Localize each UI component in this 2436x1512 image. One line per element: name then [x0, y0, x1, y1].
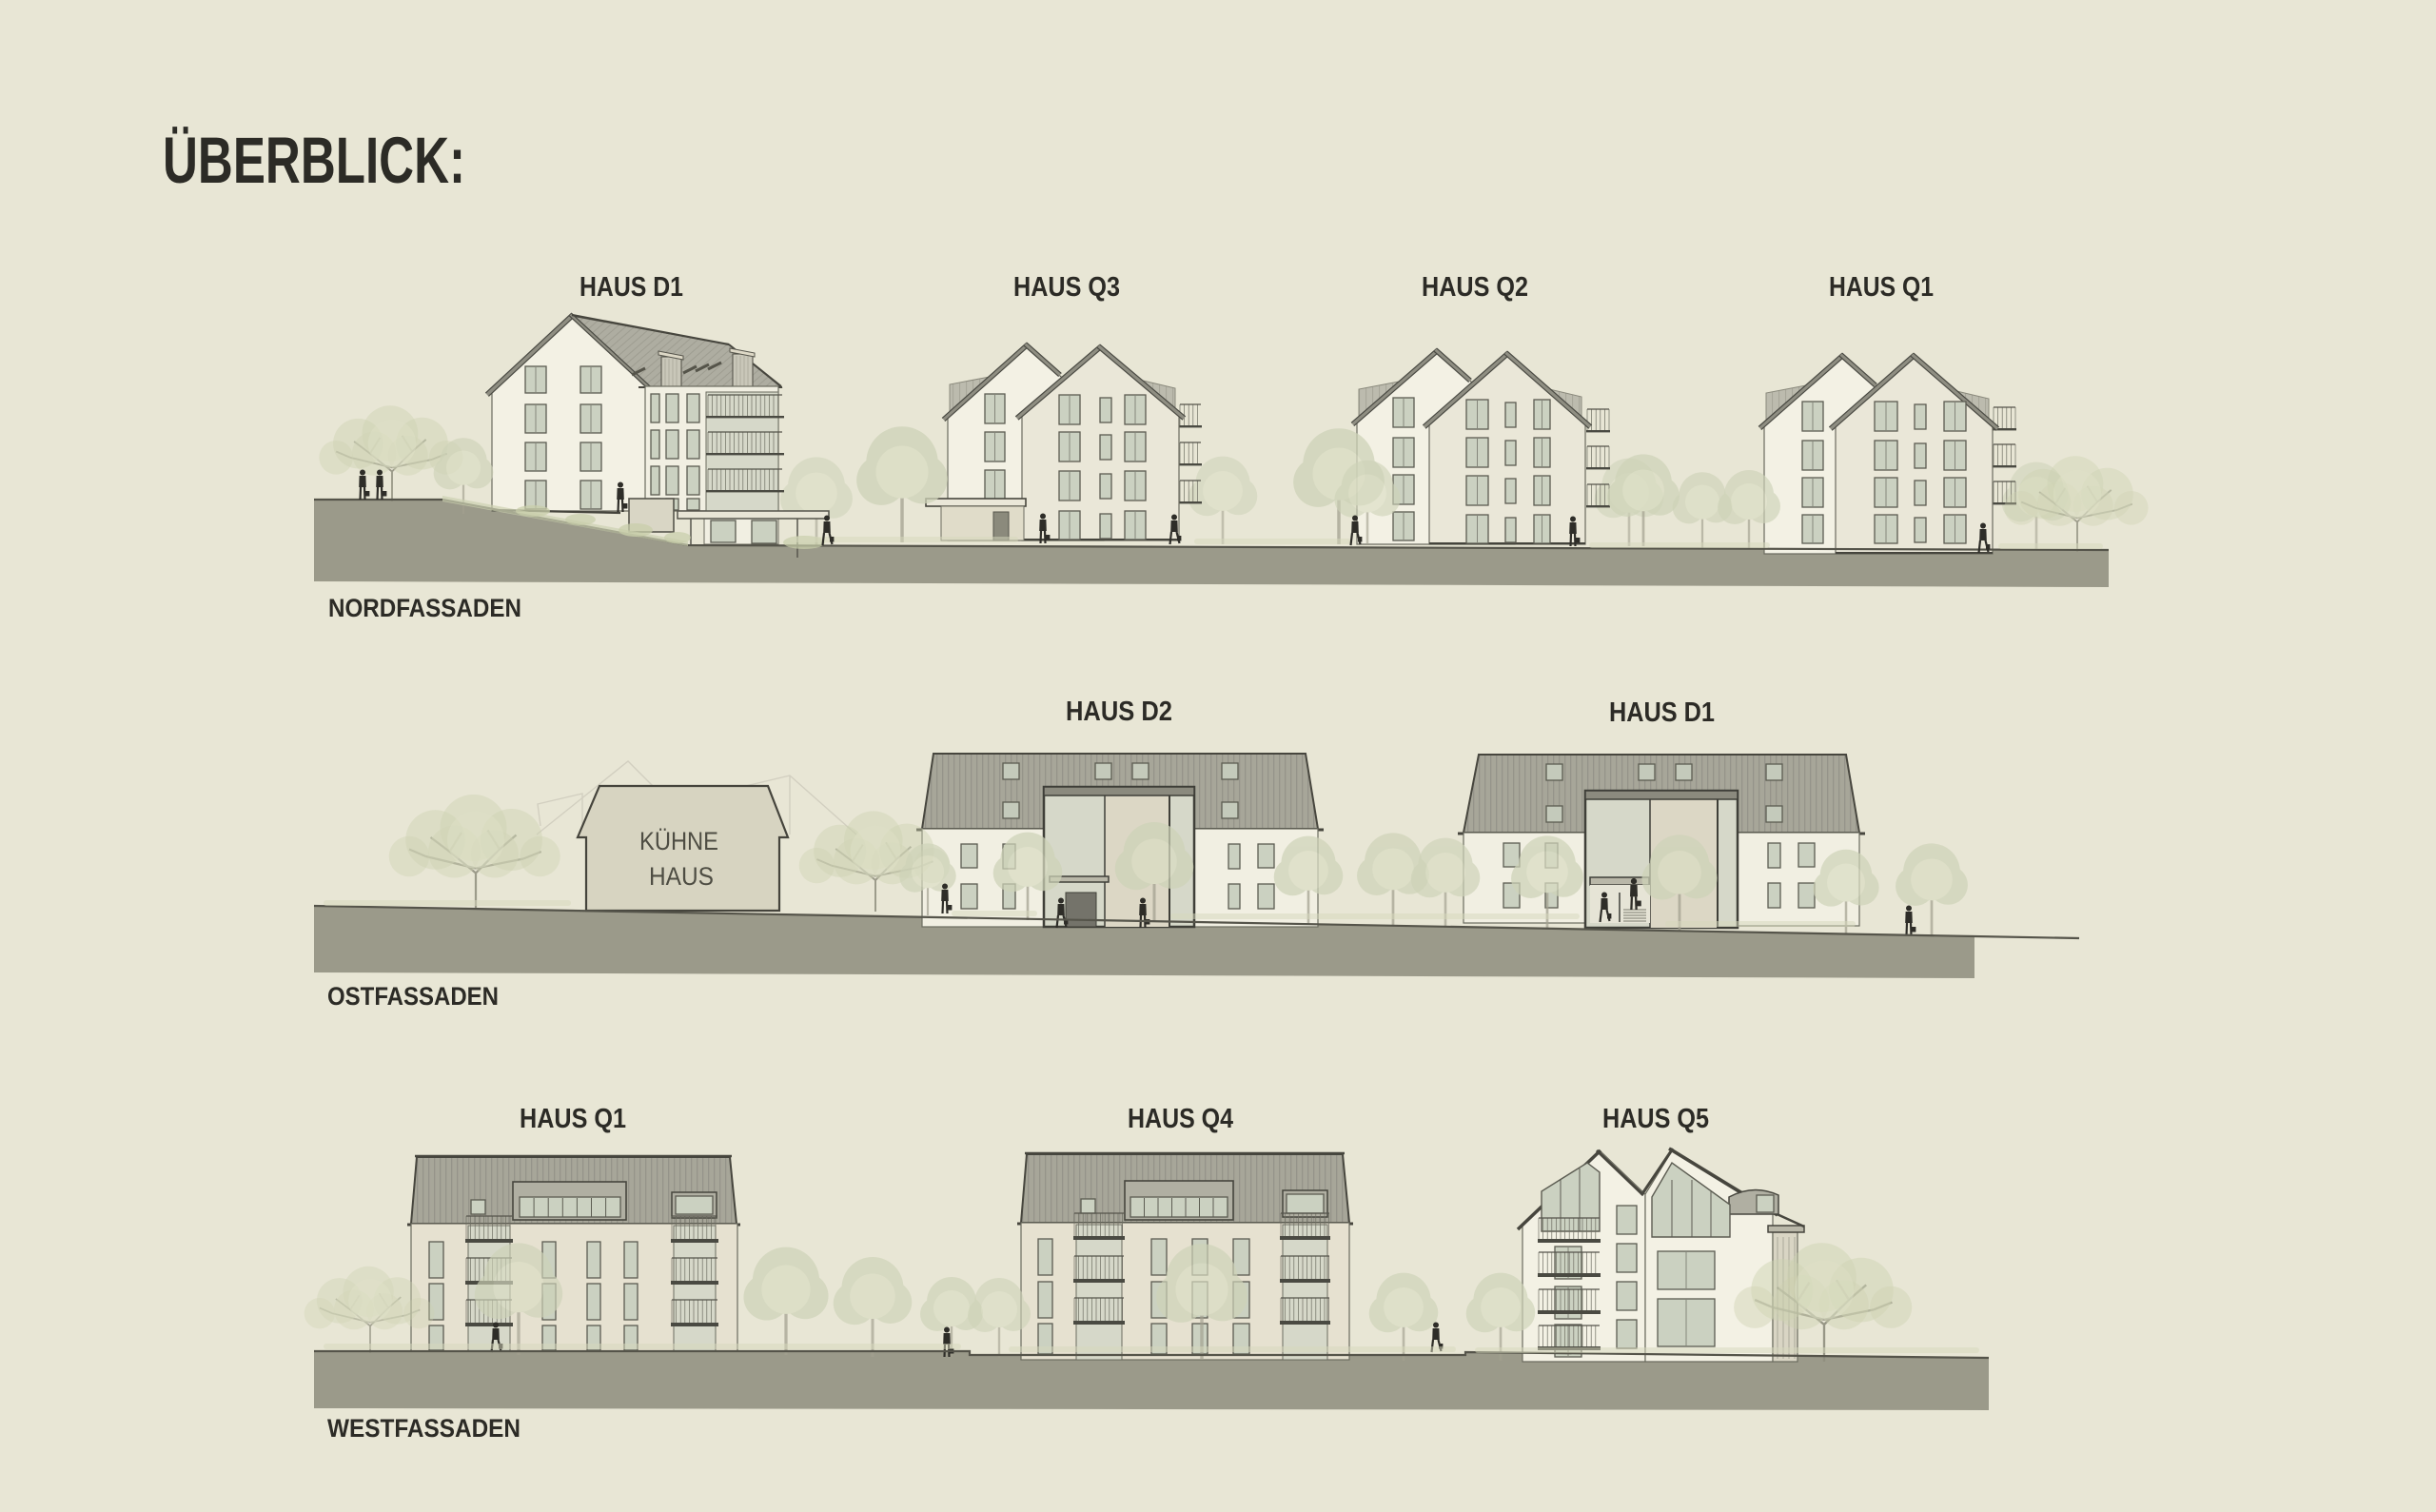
svg-text:HAUS Q1: HAUS Q1 — [520, 1104, 626, 1134]
svg-text:HAUS D2: HAUS D2 — [1066, 697, 1172, 727]
svg-text:NORDFASSADEN: NORDFASSADEN — [328, 594, 521, 622]
svg-text:HAUS D1: HAUS D1 — [580, 272, 683, 303]
svg-text:HAUS Q5: HAUS Q5 — [1602, 1104, 1709, 1134]
svg-text:HAUS Q4: HAUS Q4 — [1128, 1104, 1233, 1134]
svg-text:HAUS: HAUS — [649, 862, 714, 891]
svg-text:HAUS Q1: HAUS Q1 — [1829, 272, 1934, 303]
svg-text:KÜHNE: KÜHNE — [639, 827, 718, 855]
svg-text:ÜBERBLICK:: ÜBERBLICK: — [163, 124, 465, 197]
svg-text:OSTFASSADEN: OSTFASSADEN — [327, 982, 499, 1011]
svg-text:HAUS Q2: HAUS Q2 — [1422, 272, 1528, 303]
svg-text:WESTFASSADEN: WESTFASSADEN — [327, 1414, 521, 1443]
svg-text:HAUS D1: HAUS D1 — [1609, 697, 1715, 728]
svg-text:HAUS Q3: HAUS Q3 — [1013, 272, 1120, 303]
